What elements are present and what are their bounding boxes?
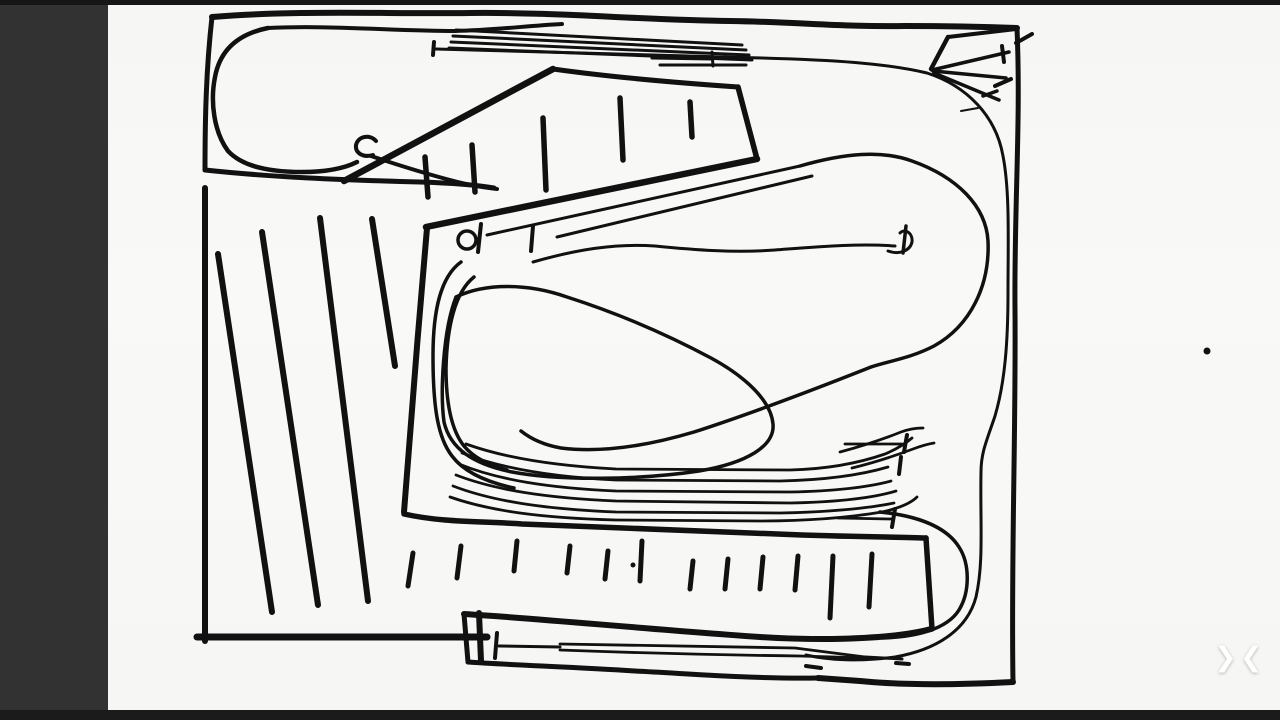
- sketch-stroke: [931, 37, 948, 69]
- sketch-stroke: [262, 232, 318, 605]
- sketch-stroke: [690, 561, 693, 589]
- sketch-stroke: [499, 646, 560, 647]
- app-window: ❯ ❮: [0, 0, 1280, 720]
- sketch-stroke: [521, 367, 871, 450]
- sketch-stroke: [213, 28, 357, 172]
- sketch-stroke: [472, 145, 475, 192]
- sketch-stroke: [795, 556, 798, 590]
- sketch-stroke: [896, 663, 909, 664]
- sketch-stroke: [557, 176, 812, 237]
- bottom-window-strip: [0, 710, 1280, 720]
- sketch-stroke: [899, 457, 901, 474]
- sketch-stroke: [995, 79, 1011, 86]
- sketch-stroke: [806, 666, 821, 668]
- sketch-stroke: [533, 245, 895, 262]
- sketch-stroke: [725, 559, 728, 589]
- sketch-stroke: [479, 613, 481, 661]
- sketch-stroke: [620, 98, 623, 160]
- sketch-stroke: [926, 538, 932, 629]
- sketch-stroke: [457, 546, 461, 578]
- sketch-stroke: [818, 678, 1013, 684]
- sketch-stroke: [961, 108, 978, 111]
- sketch-stroke: [218, 254, 272, 612]
- sketch-stroke: [372, 219, 395, 366]
- top-window-strip: [0, 0, 1280, 5]
- sketch-stroke: [446, 277, 507, 470]
- left-collapsed-panel: [0, 0, 108, 720]
- sketch-stroke: [830, 556, 833, 618]
- sketch-stroke: [652, 58, 712, 59]
- collapse-right-chevron-icon[interactable]: ❯: [1214, 642, 1236, 674]
- sketch-stroke: [543, 118, 546, 190]
- sketch-stroke: [892, 509, 895, 527]
- sketch-stroke: [712, 52, 713, 66]
- sketch-stroke: [690, 102, 692, 137]
- sketch-stroke: [738, 87, 757, 159]
- sketch-stroke: [869, 554, 872, 607]
- sketch-stroke: [852, 443, 934, 468]
- panel-collapse-controls: ❯ ❮: [1214, 642, 1262, 674]
- sketch-stroke: [514, 541, 517, 571]
- sketch-stroke: [904, 435, 907, 452]
- sketch-stroke: [800, 154, 988, 367]
- sketch-stroke: [838, 518, 892, 519]
- sketch-stroke: [478, 224, 481, 252]
- sketch-stroke: [433, 42, 434, 55]
- sketch-stroke: [268, 24, 562, 31]
- sketch-stroke: [464, 614, 931, 639]
- collapse-left-chevron-icon[interactable]: ❮: [1240, 642, 1262, 674]
- sketch-stroke-group: [197, 13, 1211, 684]
- sketch-stroke: [404, 228, 427, 512]
- sketch-stroke: [344, 69, 553, 181]
- sketch-stroke: [760, 557, 763, 589]
- sketch-stroke: [495, 633, 497, 658]
- sketch-stroke: [983, 91, 997, 96]
- sketch-stroke: [880, 512, 967, 638]
- sketch-dot: [1204, 348, 1211, 355]
- sketch-stroke: [605, 551, 608, 579]
- sketch-circle-marker: [458, 231, 476, 249]
- sketch-stroke: [567, 546, 570, 573]
- sketch-stroke: [1002, 46, 1004, 62]
- sketch-layer: [0, 0, 1280, 720]
- sketch-stroke: [356, 137, 376, 156]
- sketch-stroke: [948, 29, 1016, 37]
- sketch-stroke: [932, 52, 1009, 70]
- sketch-stroke: [553, 69, 738, 87]
- sketch-stroke: [888, 231, 912, 253]
- sketch-stroke: [425, 157, 428, 197]
- sketch-stroke: [640, 541, 642, 581]
- sketch-stroke: [468, 662, 818, 678]
- sketch-stroke: [1013, 28, 1019, 682]
- sketch-stroke: [320, 218, 368, 601]
- sketch-stroke: [865, 657, 902, 659]
- sketch-dot: [631, 563, 636, 568]
- sketch-stroke: [436, 49, 1008, 660]
- sketch-stroke: [531, 226, 533, 251]
- sketch-stroke: [408, 553, 413, 586]
